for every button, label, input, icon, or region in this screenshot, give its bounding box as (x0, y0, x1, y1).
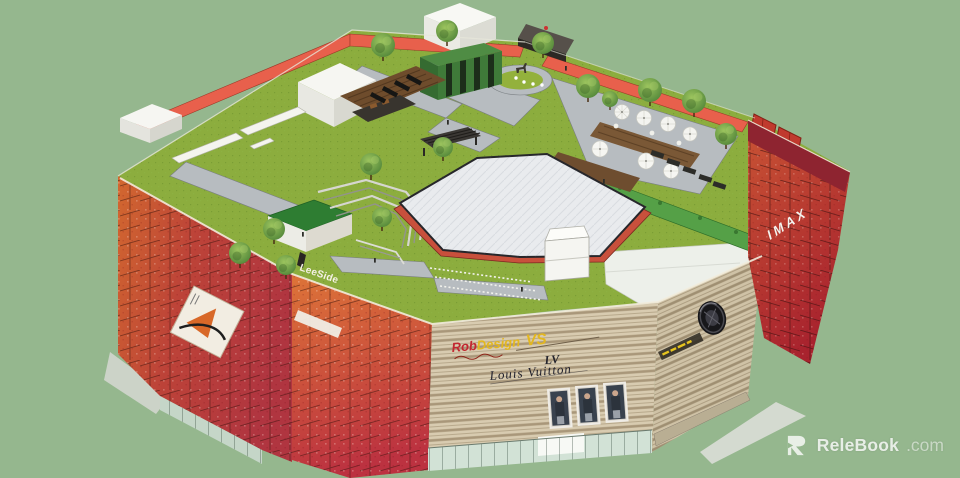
watermark: ReleBook.com (785, 433, 944, 458)
relebook-logo-icon (785, 433, 810, 458)
watermark-brand: ReleBook (817, 435, 899, 456)
render-canvas: LeeSide RobDesignVS LV Louis Vuitton (0, 0, 960, 478)
fashion-posters (548, 383, 628, 428)
white-cube (545, 226, 589, 281)
mall-3d-render: LeeSide RobDesignVS LV Louis Vuitton (0, 0, 960, 478)
island-lawn (497, 71, 543, 90)
facade-front: RobDesignVS LV Louis Vuitton (428, 302, 658, 471)
watermark-suffix: .com (906, 435, 944, 456)
